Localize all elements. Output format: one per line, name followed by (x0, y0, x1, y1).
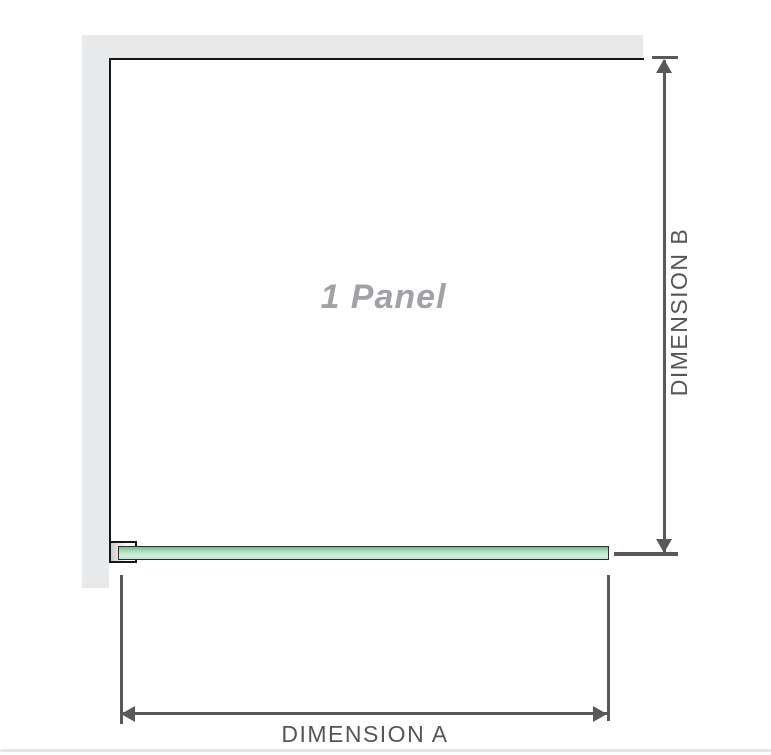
product-dimension-diagram: 1 Panel DIMENSION B DIMENSION A (0, 0, 771, 755)
dim-a-line (123, 712, 607, 715)
dimension-b-label: DIMENSION B (666, 217, 692, 407)
dim-a-left-extension (120, 575, 123, 724)
panel-count-label: 1 Panel (111, 60, 644, 542)
wall-top-band (82, 35, 643, 59)
bottom-divider (0, 749, 771, 752)
arrow-left-icon (121, 706, 135, 722)
dim-a-right-extension (607, 575, 610, 721)
dimension-a-label: DIMENSION A (123, 721, 607, 748)
wall-left-band (82, 35, 109, 588)
arrow-right-icon (593, 706, 607, 722)
arrow-down-icon (656, 539, 672, 553)
arrow-up-icon (656, 59, 672, 73)
glass-panel-bar (118, 546, 609, 560)
